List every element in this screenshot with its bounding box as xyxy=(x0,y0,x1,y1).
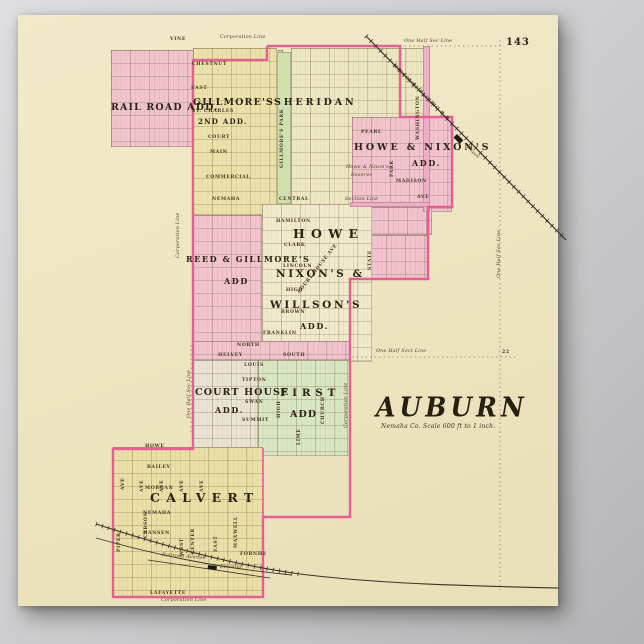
street-label: LIME xyxy=(298,428,303,445)
annotation-label: One Half Sec Line xyxy=(188,370,193,418)
street-label: CLARK xyxy=(284,244,305,249)
street-label: EAST xyxy=(215,536,220,552)
map-subtitle: Nemaha Co. Scale 600 ft to 1 inch. xyxy=(381,424,495,430)
street-label: HOWE xyxy=(145,445,165,450)
backdrop: One Half Sec LineCorporation LineVINECHE… xyxy=(0,0,644,644)
addition-label: REED & GILLMORE'S xyxy=(186,255,310,263)
addition-label: COURT HOUSE xyxy=(195,388,289,398)
street-label: GILLMORE'S PARK xyxy=(281,109,286,168)
street-label: NORTH xyxy=(237,344,260,349)
addition-label: ADD. xyxy=(300,322,329,330)
street-label: HELVEY xyxy=(218,354,243,359)
page-number: 143 xyxy=(506,38,530,48)
street-label: 22 xyxy=(502,351,510,356)
street-label: BROWN xyxy=(281,311,305,316)
street-label: BAILEY xyxy=(147,466,170,471)
annotation-label: Elevator xyxy=(220,566,242,571)
street-label: SUMMIT xyxy=(242,419,269,424)
street-label: SOUTH xyxy=(283,354,305,359)
annotation-label: Corporation Line xyxy=(345,383,350,428)
street-label: NEMAHA xyxy=(212,198,240,203)
annotation-label: One Half Sect Line xyxy=(376,350,427,355)
street-label: CENTER xyxy=(192,528,197,554)
street-label: CENTRAL xyxy=(279,198,309,203)
street-label: FRANKLIN xyxy=(263,332,297,337)
addition-label: HOWE xyxy=(293,228,364,241)
street-label: LAFAYETTE xyxy=(150,592,186,597)
street-label: AVE xyxy=(417,196,429,201)
annotation-label: Corporation Line xyxy=(161,599,206,604)
addition-label: ADD. xyxy=(412,159,441,167)
street-label: LOUIS xyxy=(244,364,264,369)
street-label: FORNHE xyxy=(240,553,267,558)
map-title: AUBURN xyxy=(376,394,528,421)
street-label: HAMILTON xyxy=(276,220,311,225)
map-labels-layer: One Half Sec LineCorporation LineVINECHE… xyxy=(0,0,644,644)
street-label: AVE xyxy=(122,478,127,490)
annotation-label: Section Line xyxy=(345,198,378,203)
annotation-label: One Half Sec Line xyxy=(404,40,452,45)
annotation-label: Reserve xyxy=(351,174,372,179)
annotation-label: Corporation Line xyxy=(177,213,182,258)
street-label: PEARL xyxy=(361,131,382,136)
annotation-label: Howe & Nixon's xyxy=(346,166,389,171)
street-label: TIPTON xyxy=(242,379,267,384)
street-label: STATE xyxy=(369,250,374,270)
street-label: MADISON xyxy=(396,180,427,185)
street-label: COURT xyxy=(208,136,230,141)
addition-label: FIRST xyxy=(280,388,340,399)
street-label: PARK xyxy=(391,160,396,177)
street-label: ST. CHARLES xyxy=(192,110,234,115)
addition-label: ADD xyxy=(290,410,317,420)
street-label: MAIN xyxy=(210,151,228,156)
addition-label: CALVERT xyxy=(150,492,259,505)
street-label: HIGH xyxy=(278,401,283,418)
street-label: CHURCH xyxy=(322,396,327,424)
street-label: SWAN xyxy=(245,401,264,406)
annotation-label: Railroad Avenue xyxy=(162,554,206,562)
addition-label: WILLSON'S xyxy=(270,300,362,311)
annotation-label: One Half Sec Line xyxy=(498,230,503,278)
street-label: WASHINGTON xyxy=(417,96,422,140)
street-label: WEST xyxy=(181,538,186,556)
annotation-label: Corporation Line xyxy=(220,36,265,41)
addition-label: ADD xyxy=(224,277,249,285)
street-label: VINE xyxy=(170,38,186,43)
street-label: CHESTNUT xyxy=(192,63,227,68)
street-label: CARSON xyxy=(145,512,150,538)
addition-label: GILLMORE'S xyxy=(193,98,274,108)
street-label: COMMERCIAL xyxy=(206,176,250,181)
street-label: MAXWELL xyxy=(235,516,240,548)
addition-label: SHERIDAN xyxy=(274,98,357,108)
street-label: PIPER xyxy=(118,532,123,552)
street-label: EAST xyxy=(191,87,207,92)
addition-label: ADD. xyxy=(215,406,244,414)
addition-label: 2ND ADD. xyxy=(198,118,248,125)
